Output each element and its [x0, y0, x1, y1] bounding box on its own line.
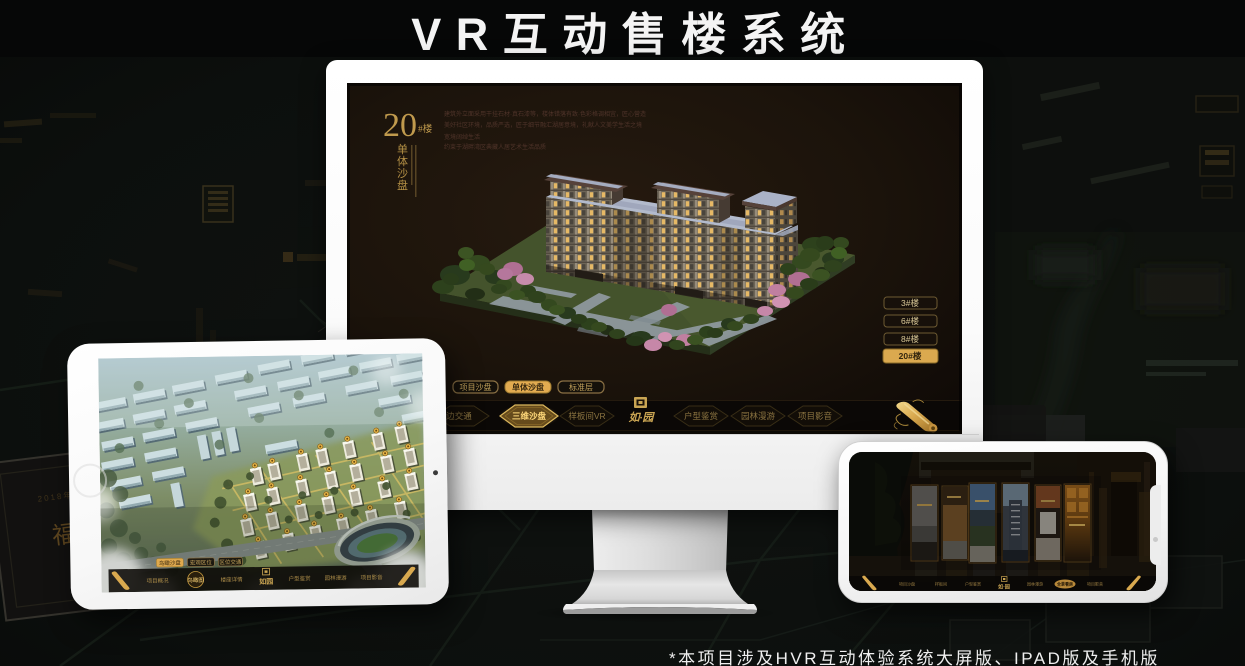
svg-text:样板间: 样板间 [935, 581, 947, 587]
svg-text:体: 体 [397, 154, 408, 168]
svg-text:项目影音: 项目影音 [1087, 581, 1103, 587]
svg-text:样板间VR: 样板间VR [568, 411, 605, 421]
svg-text:20: 20 [383, 107, 417, 144]
svg-text:三维沙盘: 三维沙盘 [512, 411, 547, 421]
svg-text:8#楼: 8#楼 [901, 334, 919, 344]
svg-text:如园: 如园 [259, 577, 273, 586]
svg-text:边交通: 边交通 [446, 411, 472, 421]
svg-text:户型鉴赏: 户型鉴赏 [965, 581, 981, 587]
svg-text:园林漫游: 园林漫游 [741, 411, 776, 421]
svg-text:项目沙盘: 项目沙盘 [460, 382, 492, 392]
svg-text:盘: 盘 [397, 178, 408, 192]
svg-text:项目影音: 项目影音 [798, 411, 833, 421]
svg-text:美好社区环境，品质严选，匠于细节融汇湖居意境，礼献人文美学生: 美好社区环境，品质严选，匠于细节融汇湖居意境，礼献人文美学生活之境 [444, 121, 642, 129]
svg-text:3#楼: 3#楼 [901, 298, 919, 308]
svg-text:建筑外立面采用干挂石材·真石漆等，楼体错落有致·色彩格调相宜: 建筑外立面采用干挂石材·真石漆等，楼体错落有致·色彩格调相宜，匠心营造 [444, 110, 646, 118]
svg-text:项目沙盘: 项目沙盘 [899, 581, 915, 587]
svg-text:如·园: 如·园 [998, 584, 1010, 591]
svg-text:全景看房: 全景看房 [1056, 581, 1073, 587]
svg-text:沙: 沙 [397, 167, 408, 180]
svg-text:单体沙盘: 单体沙盘 [512, 382, 544, 392]
svg-text:标准层: 标准层 [569, 382, 593, 392]
svg-text:如·园: 如·园 [629, 411, 656, 424]
svg-text:单: 单 [397, 143, 408, 156]
svg-text:20#楼: 20#楼 [899, 351, 922, 361]
svg-text:园林漫游: 园林漫游 [1027, 581, 1043, 587]
svg-text:鸟瞰图: 鸟瞰图 [187, 576, 204, 584]
svg-text:约束于湖畔湾区典藏人居艺术生活品质: 约束于湖畔湾区典藏人居艺术生活品质 [444, 143, 546, 151]
svg-text:#楼: #楼 [418, 123, 433, 135]
svg-text:宽境阔绰生活: 宽境阔绰生活 [444, 133, 480, 141]
svg-text:户型鉴赏: 户型鉴赏 [684, 411, 718, 421]
svg-text:6#楼: 6#楼 [901, 316, 919, 326]
